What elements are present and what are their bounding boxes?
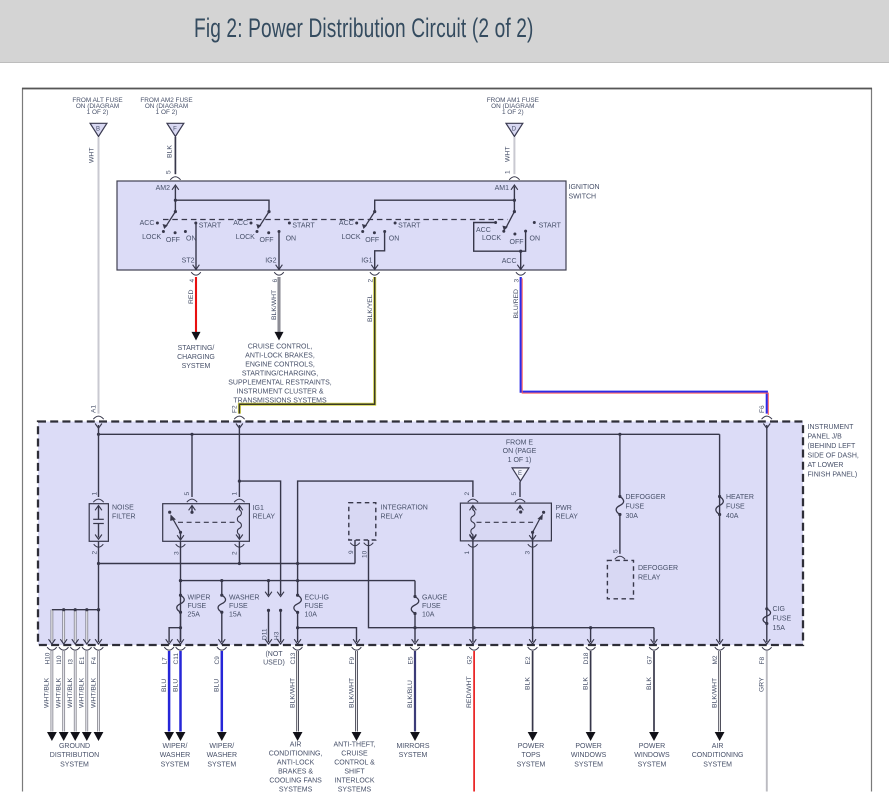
svg-text:CIG: CIG bbox=[773, 606, 785, 613]
svg-text:SYSTEM: SYSTEM bbox=[399, 752, 428, 759]
svg-text:ACC: ACC bbox=[339, 220, 354, 227]
svg-text:FUSE: FUSE bbox=[229, 603, 248, 610]
svg-text:SYSTEM: SYSTEM bbox=[574, 761, 603, 768]
svg-text:2: 2 bbox=[464, 492, 471, 496]
svg-text:BLK/WHT: BLK/WHT bbox=[711, 678, 718, 708]
svg-text:ECU-IG: ECU-IG bbox=[305, 595, 330, 602]
svg-text:START: START bbox=[199, 223, 222, 230]
svg-text:BLK: BLK bbox=[582, 677, 589, 690]
svg-text:PANEL J/B: PANEL J/B bbox=[808, 433, 843, 440]
svg-text:G2: G2 bbox=[467, 655, 474, 664]
svg-text:FUSE: FUSE bbox=[626, 503, 645, 510]
svg-text:COOLING FANS: COOLING FANS bbox=[269, 777, 322, 784]
svg-text:INTEGRATION: INTEGRATION bbox=[381, 504, 428, 511]
svg-text:I10: I10 bbox=[56, 655, 63, 664]
svg-text:ACC: ACC bbox=[140, 220, 155, 227]
svg-text:1: 1 bbox=[504, 170, 511, 174]
svg-text:GAUGE: GAUGE bbox=[422, 595, 448, 602]
svg-text:D: D bbox=[512, 127, 517, 133]
svg-text:10A: 10A bbox=[305, 612, 318, 619]
svg-text:H3: H3 bbox=[273, 631, 280, 640]
svg-text:F: F bbox=[173, 127, 177, 133]
svg-text:1: 1 bbox=[464, 551, 471, 555]
svg-text:4: 4 bbox=[189, 279, 196, 283]
svg-text:ANTI-LOCK BRAKES,: ANTI-LOCK BRAKES, bbox=[245, 352, 315, 359]
svg-text:5: 5 bbox=[612, 549, 619, 553]
svg-text:A1: A1 bbox=[90, 405, 97, 413]
svg-text:10A: 10A bbox=[422, 612, 435, 619]
svg-text:OFF: OFF bbox=[510, 239, 524, 246]
svg-text:B: B bbox=[96, 127, 100, 133]
svg-text:D18: D18 bbox=[583, 652, 590, 664]
svg-text:RELAY: RELAY bbox=[381, 514, 404, 521]
svg-text:ON: ON bbox=[530, 235, 541, 242]
svg-text:BRAKES &: BRAKES & bbox=[278, 768, 313, 775]
svg-text:WHT/BLK: WHT/BLK bbox=[90, 677, 97, 708]
svg-text:AM2: AM2 bbox=[156, 185, 171, 192]
svg-text:RELAY: RELAY bbox=[638, 575, 661, 582]
svg-text:CONDITIONING,: CONDITIONING, bbox=[269, 750, 323, 757]
svg-text:IGNITION: IGNITION bbox=[569, 184, 600, 191]
svg-text:STARTING/: STARTING/ bbox=[178, 345, 215, 352]
svg-text:SIDE OF DASH,: SIDE OF DASH, bbox=[808, 452, 859, 459]
svg-text:E5: E5 bbox=[407, 656, 414, 664]
svg-text:CHARGING: CHARGING bbox=[177, 354, 215, 361]
svg-text:F4: F4 bbox=[91, 657, 98, 665]
svg-text:IG2: IG2 bbox=[265, 257, 276, 264]
svg-text:I3: I3 bbox=[68, 659, 75, 665]
svg-text:ON: ON bbox=[186, 236, 197, 243]
svg-text:IG1: IG1 bbox=[253, 505, 264, 512]
svg-text:WHT/BLK: WHT/BLK bbox=[56, 677, 63, 708]
svg-text:RED: RED bbox=[188, 290, 195, 304]
svg-text:DISTRIBUTION: DISTRIBUTION bbox=[50, 752, 99, 759]
svg-text:WINDOWS: WINDOWS bbox=[634, 752, 670, 759]
svg-text:INTERLOCK: INTERLOCK bbox=[334, 777, 374, 784]
svg-text:WASHER: WASHER bbox=[229, 595, 259, 602]
svg-text:SYSTEM: SYSTEM bbox=[703, 761, 732, 768]
svg-text:BLK: BLK bbox=[646, 677, 653, 690]
svg-text:GRY: GRY bbox=[759, 677, 766, 692]
svg-text:SWITCH: SWITCH bbox=[569, 193, 597, 200]
svg-text:USED): USED) bbox=[263, 660, 285, 667]
svg-text:START: START bbox=[539, 223, 562, 230]
svg-text:LOCK: LOCK bbox=[142, 234, 161, 241]
svg-text:C11: C11 bbox=[173, 653, 180, 665]
svg-text:IG1: IG1 bbox=[361, 257, 372, 264]
svg-text:30A: 30A bbox=[626, 513, 639, 520]
svg-text:M2: M2 bbox=[712, 655, 719, 664]
svg-text:SYSTEM: SYSTEM bbox=[161, 761, 190, 768]
svg-text:POWER: POWER bbox=[575, 743, 601, 750]
svg-text:BLK: BLK bbox=[166, 145, 173, 158]
svg-text:G7: G7 bbox=[646, 655, 653, 664]
svg-text:FROM E: FROM E bbox=[506, 439, 534, 446]
svg-text:AT LOWER: AT LOWER bbox=[808, 462, 844, 469]
svg-text:BLK/WHT: BLK/WHT bbox=[271, 290, 278, 320]
svg-text:3: 3 bbox=[525, 551, 532, 555]
svg-text:1: 1 bbox=[232, 492, 239, 496]
svg-text:CRUISE: CRUISE bbox=[341, 750, 368, 757]
svg-text:C13: C13 bbox=[290, 652, 297, 664]
svg-text:PWR: PWR bbox=[556, 505, 572, 512]
svg-text:WASHER: WASHER bbox=[160, 752, 190, 759]
svg-text:1 OF 2): 1 OF 2) bbox=[87, 109, 109, 116]
svg-text:SYSTEMS: SYSTEMS bbox=[338, 786, 372, 793]
svg-text:5: 5 bbox=[184, 492, 191, 496]
svg-text:C9: C9 bbox=[214, 656, 221, 665]
svg-text:BLK/WHT: BLK/WHT bbox=[289, 678, 296, 708]
svg-text:CONTROL &: CONTROL & bbox=[334, 759, 375, 766]
svg-text:LOCK: LOCK bbox=[341, 234, 360, 241]
svg-text:F9: F9 bbox=[349, 657, 356, 665]
svg-text:OFF: OFF bbox=[166, 237, 180, 244]
svg-text:ON: ON bbox=[389, 236, 400, 243]
svg-text:E: E bbox=[518, 471, 522, 477]
svg-text:ANTI-THEFT,: ANTI-THEFT, bbox=[334, 741, 376, 748]
svg-text:SYSTEMS: SYSTEMS bbox=[279, 786, 313, 793]
svg-text:BLU: BLU bbox=[214, 679, 221, 692]
svg-text:BLU: BLU bbox=[161, 679, 168, 692]
svg-text:HEATER: HEATER bbox=[726, 494, 754, 501]
svg-text:ST2: ST2 bbox=[182, 257, 195, 264]
svg-text:3: 3 bbox=[514, 279, 521, 283]
svg-text:BLK/BLU: BLK/BLU bbox=[407, 680, 414, 708]
svg-text:ON (PAGE: ON (PAGE bbox=[503, 448, 537, 455]
svg-text:FUSE: FUSE bbox=[773, 616, 792, 623]
svg-text:WHT/BLK: WHT/BLK bbox=[44, 677, 51, 708]
svg-text:L7: L7 bbox=[162, 657, 169, 665]
svg-text:START: START bbox=[398, 223, 421, 230]
svg-text:5: 5 bbox=[511, 492, 518, 496]
svg-text:DEFOGGER: DEFOGGER bbox=[626, 494, 666, 501]
svg-text:NOISE: NOISE bbox=[112, 504, 134, 511]
svg-text:WIPER: WIPER bbox=[188, 595, 211, 602]
svg-text:RELAY: RELAY bbox=[253, 514, 276, 521]
svg-text:F8: F8 bbox=[759, 657, 766, 665]
svg-text:SYSTEM: SYSTEM bbox=[182, 363, 211, 370]
svg-text:WHT/BLK: WHT/BLK bbox=[67, 677, 74, 708]
svg-text:BLK/WHT: BLK/WHT bbox=[348, 678, 355, 708]
svg-text:1 OF 1): 1 OF 1) bbox=[508, 457, 532, 464]
svg-text:SYSTEM: SYSTEM bbox=[638, 761, 667, 768]
svg-text:START: START bbox=[292, 223, 315, 230]
svg-text:INSTRUMENT: INSTRUMENT bbox=[808, 424, 855, 431]
svg-text:CONDITIONING: CONDITIONING bbox=[692, 752, 744, 759]
svg-text:BLU/RED: BLU/RED bbox=[513, 289, 520, 319]
svg-text:2: 2 bbox=[232, 551, 239, 555]
svg-text:ANTI-LOCK: ANTI-LOCK bbox=[277, 759, 315, 766]
svg-text:15A: 15A bbox=[229, 612, 242, 619]
svg-text:FUSE: FUSE bbox=[305, 603, 324, 610]
svg-text:GROUND: GROUND bbox=[59, 743, 90, 750]
svg-text:SYSTEM: SYSTEM bbox=[517, 761, 546, 768]
svg-text:25A: 25A bbox=[188, 612, 201, 619]
svg-text:F2: F2 bbox=[232, 405, 239, 413]
svg-text:40A: 40A bbox=[726, 513, 739, 520]
svg-text:F6: F6 bbox=[759, 405, 766, 413]
svg-text:LOCK: LOCK bbox=[482, 235, 501, 242]
svg-text:D11: D11 bbox=[261, 628, 268, 640]
svg-text:5: 5 bbox=[165, 170, 172, 174]
svg-text:1: 1 bbox=[91, 492, 98, 496]
svg-text:15A: 15A bbox=[773, 625, 786, 632]
svg-text:BLK/YEL: BLK/YEL bbox=[367, 294, 374, 322]
svg-text:POWER: POWER bbox=[518, 743, 544, 750]
svg-text:WIPER/: WIPER/ bbox=[163, 743, 188, 750]
svg-text:RELAY: RELAY bbox=[556, 514, 579, 521]
svg-text:OFF: OFF bbox=[260, 237, 274, 244]
svg-text:WHT: WHT bbox=[504, 147, 511, 162]
svg-text:WIPER/: WIPER/ bbox=[209, 743, 234, 750]
svg-text:2: 2 bbox=[91, 551, 98, 555]
svg-text:H10: H10 bbox=[44, 652, 51, 664]
svg-text:9: 9 bbox=[348, 550, 355, 554]
svg-text:10: 10 bbox=[361, 550, 368, 558]
svg-text:1 OF 2): 1 OF 2) bbox=[156, 109, 178, 116]
svg-text:AIR: AIR bbox=[712, 743, 724, 750]
svg-text:LOCK: LOCK bbox=[236, 234, 255, 241]
svg-text:(NOT: (NOT bbox=[265, 651, 283, 658]
svg-text:TRANSMISSIONS SYSTEMS: TRANSMISSIONS SYSTEMS bbox=[233, 397, 327, 404]
svg-text:INSTRUMENT CLUSTER &: INSTRUMENT CLUSTER & bbox=[237, 388, 324, 395]
svg-text:BLU: BLU bbox=[172, 679, 179, 692]
svg-text:FILTER: FILTER bbox=[112, 514, 136, 521]
svg-text:WHT/BLK: WHT/BLK bbox=[79, 677, 86, 708]
svg-text:FUSE: FUSE bbox=[188, 603, 207, 610]
svg-text:DEFOGGER: DEFOGGER bbox=[638, 565, 678, 572]
svg-text:SHIFT: SHIFT bbox=[344, 768, 365, 775]
svg-text:MIRRORS: MIRRORS bbox=[396, 743, 429, 750]
svg-text:ACC: ACC bbox=[502, 258, 517, 265]
svg-text:STARTING/CHARGING,: STARTING/CHARGING, bbox=[242, 370, 318, 377]
svg-text:FINISH PANEL): FINISH PANEL) bbox=[808, 471, 858, 478]
svg-text:POWER: POWER bbox=[639, 743, 665, 750]
svg-text:OFF: OFF bbox=[365, 237, 379, 244]
svg-text:AM1: AM1 bbox=[495, 185, 510, 192]
svg-text:WASHER: WASHER bbox=[207, 752, 237, 759]
svg-text:FUSE: FUSE bbox=[726, 503, 745, 510]
svg-text:TOPS: TOPS bbox=[522, 752, 541, 759]
svg-text:ACC: ACC bbox=[476, 227, 491, 234]
svg-text:RED/WHT: RED/WHT bbox=[466, 676, 473, 708]
svg-text:ACC: ACC bbox=[233, 220, 248, 227]
svg-text:SYSTEM: SYSTEM bbox=[207, 761, 236, 768]
svg-text:SYSTEM: SYSTEM bbox=[60, 761, 89, 768]
svg-text:ENGINE CONTROLS,: ENGINE CONTROLS, bbox=[245, 361, 315, 368]
svg-text:ON: ON bbox=[286, 236, 297, 243]
svg-text:(BEHIND LEFT: (BEHIND LEFT bbox=[808, 443, 857, 450]
svg-text:WINDOWS: WINDOWS bbox=[571, 752, 607, 759]
svg-text:E2: E2 bbox=[525, 656, 532, 664]
svg-text:SUPPLEMENTAL RESTRAINTS,: SUPPLEMENTAL RESTRAINTS, bbox=[228, 379, 332, 386]
svg-text:CRUISE CONTROL,: CRUISE CONTROL, bbox=[248, 343, 313, 350]
svg-text:AIR: AIR bbox=[290, 741, 302, 748]
svg-text:FUSE: FUSE bbox=[422, 603, 441, 610]
svg-text:3: 3 bbox=[173, 551, 180, 555]
svg-text:E1: E1 bbox=[79, 656, 86, 664]
svg-text:WHT: WHT bbox=[89, 148, 96, 163]
svg-text:BLK: BLK bbox=[524, 677, 531, 690]
svg-text:1 OF 2): 1 OF 2) bbox=[502, 109, 524, 116]
